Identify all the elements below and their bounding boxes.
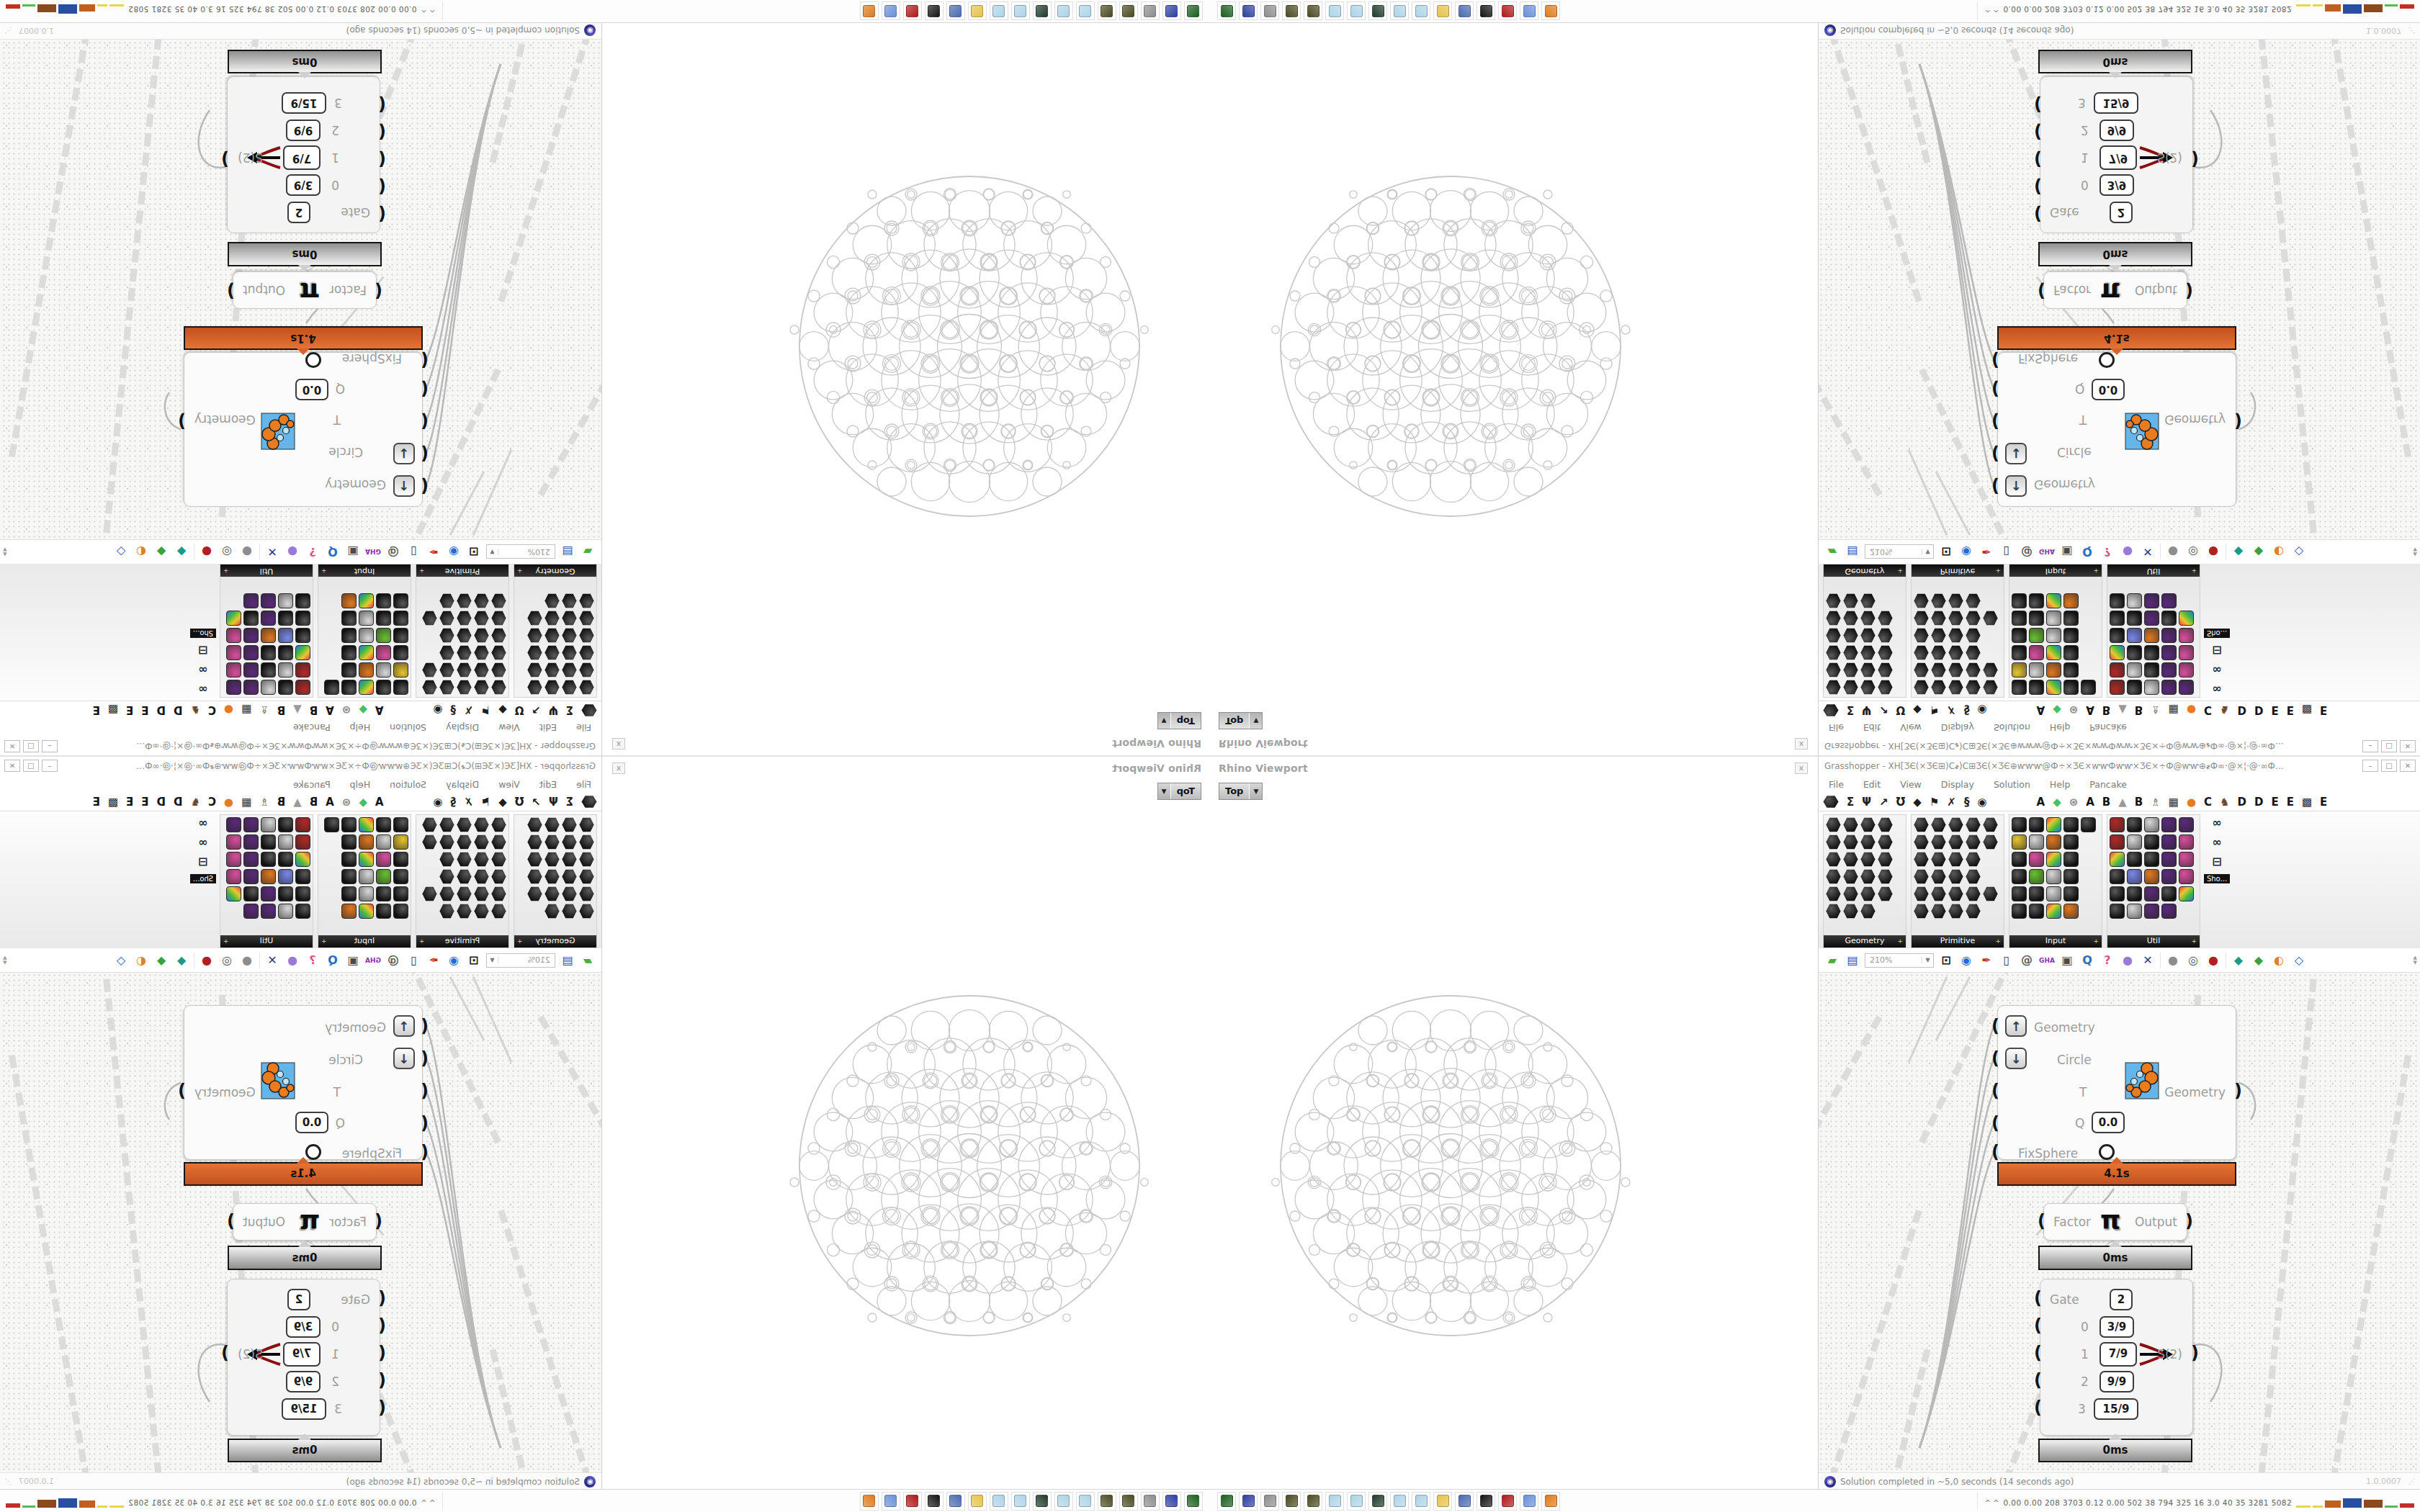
- gh-tab[interactable]: ▩: [2302, 702, 2312, 719]
- toolbar-button[interactable]: ◉: [446, 544, 462, 560]
- palette-icon[interactable]: [261, 834, 276, 850]
- palette-icon[interactable]: [243, 886, 259, 901]
- palette-icon[interactable]: [2012, 628, 2027, 643]
- palette-icon[interactable]: [295, 817, 310, 832]
- palette-icon[interactable]: [2063, 593, 2079, 608]
- palette-icon[interactable]: [2046, 869, 2061, 884]
- close-icon[interactable]: x: [1795, 738, 1808, 750]
- palette-icon[interactable]: [1966, 834, 1981, 850]
- input-port[interactable]: (: [2034, 1318, 2042, 1333]
- toolbar-button[interactable]: ◇: [113, 544, 129, 560]
- palette-icon[interactable]: [226, 852, 241, 867]
- menu-pancake[interactable]: Pancake: [293, 723, 331, 734]
- palette-icon[interactable]: [2029, 852, 2044, 867]
- palette-icon[interactable]: [544, 817, 560, 832]
- palette-icon[interactable]: [1914, 904, 1929, 919]
- taskbar-app-icon[interactable]: [1520, 2, 1538, 21]
- palette-icon[interactable]: [457, 611, 472, 626]
- palette-icon[interactable]: [341, 611, 357, 626]
- palette-icon[interactable]: [376, 904, 391, 919]
- palette-icon[interactable]: [1966, 904, 1981, 919]
- palette-icon[interactable]: [295, 852, 310, 867]
- gh-tab[interactable]: D: [2237, 793, 2246, 811]
- palette-group-label[interactable]: Util+: [2107, 564, 2200, 577]
- gh-tab[interactable]: C: [2204, 793, 2212, 811]
- gh-tab[interactable]: ✗: [1947, 702, 1956, 719]
- output-port[interactable]: ): [2234, 1084, 2242, 1098]
- node-circlepack-component[interactable]: ( ( ( ( ( ) ↑ ↓ Geometry Circle T Q 0.0 …: [1997, 352, 2236, 507]
- toolbar-scroll-arrows[interactable]: ▲▼: [2414, 955, 2417, 966]
- taskbar-app-icon[interactable]: [1390, 2, 1409, 21]
- gh-tab[interactable]: E: [126, 793, 133, 811]
- gh-tab[interactable]: Σ: [1847, 702, 1854, 719]
- palette-icon[interactable]: [1948, 904, 1963, 919]
- palette-icon[interactable]: [2110, 904, 2125, 919]
- gh-tab[interactable]: ◉: [1977, 793, 1986, 811]
- palette-group-label[interactable]: Primitive+: [1912, 564, 2004, 577]
- palette-icon[interactable]: [2127, 904, 2142, 919]
- palette-icon[interactable]: [491, 869, 506, 884]
- input-port[interactable]: (: [1991, 479, 1999, 493]
- palette-icon[interactable]: [2144, 645, 2159, 660]
- palette-icon[interactable]: [2110, 628, 2125, 643]
- palette-icon[interactable]: [2179, 628, 2194, 643]
- chevron-down-icon[interactable]: ▼: [1922, 957, 1933, 963]
- toolbar-button[interactable]: Q: [325, 953, 341, 968]
- palette-icon[interactable]: [2144, 817, 2159, 832]
- output-port[interactable]: ): [221, 1346, 229, 1360]
- taskbar-app-icon[interactable]: [1455, 1492, 1474, 1511]
- palette-icon[interactable]: [422, 886, 437, 901]
- palette-icon[interactable]: [278, 662, 293, 678]
- palette-icon[interactable]: [422, 834, 437, 850]
- input-port[interactable]: (: [378, 152, 386, 166]
- toolbar-button[interactable]: ▣: [345, 544, 361, 560]
- palette-icon[interactable]: [1914, 886, 1929, 901]
- gh-tab[interactable]: E: [141, 702, 148, 719]
- palette-icon[interactable]: [359, 904, 374, 919]
- minimize-button[interactable]: –: [42, 760, 58, 772]
- menu-view[interactable]: View: [498, 779, 520, 790]
- gate-row-value[interactable]: 3/9: [286, 174, 321, 196]
- taskbar-app-icon[interactable]: [1498, 1492, 1517, 1511]
- palette-icon[interactable]: [393, 834, 408, 850]
- palette-icon[interactable]: [1826, 628, 1841, 643]
- palette-icon[interactable]: [544, 662, 560, 678]
- close-icon[interactable]: x: [612, 762, 625, 774]
- palette-icon[interactable]: [2161, 645, 2177, 660]
- palette-icon[interactable]: [544, 628, 560, 643]
- palette-icon[interactable]: [2161, 611, 2177, 626]
- chevron-down-icon[interactable]: ▼: [1249, 783, 1262, 799]
- gate-row-value-active[interactable]: 7/9: [283, 1342, 321, 1367]
- palette-icon[interactable]: [422, 611, 437, 626]
- palette-icon[interactable]: [341, 886, 357, 901]
- palette-icon[interactable]: [1914, 852, 1929, 867]
- toolbar-button[interactable]: ?: [305, 544, 321, 560]
- palette-icon[interactable]: [261, 852, 276, 867]
- close-button[interactable]: ✕: [2400, 760, 2416, 772]
- gate-row-value[interactable]: 3/9: [286, 1316, 321, 1338]
- output-port[interactable]: ): [2191, 152, 2199, 166]
- palette-icon[interactable]: [2063, 852, 2079, 867]
- minimize-button[interactable]: –: [42, 740, 58, 752]
- taskbar-app-icon[interactable]: [1098, 2, 1116, 21]
- taskbar-app-icon[interactable]: [1119, 2, 1138, 21]
- toolbar-button[interactable]: ◎: [2185, 953, 2201, 968]
- gh-tab[interactable]: ◆: [2053, 702, 2061, 719]
- input-port[interactable]: (: [1991, 1145, 1999, 1159]
- palette-icon[interactable]: [2029, 869, 2044, 884]
- palette-icon[interactable]: [2029, 645, 2044, 660]
- node-pi-component[interactable]: ( ) Factor π Output: [2043, 271, 2187, 309]
- palette-icon[interactable]: [376, 869, 391, 884]
- gh-tab[interactable]: ◉: [433, 793, 442, 811]
- toolbar-button[interactable]: ◆: [153, 953, 169, 968]
- palette-icon[interactable]: [243, 852, 259, 867]
- input-port[interactable]: (: [1991, 353, 1999, 367]
- palette-icon[interactable]: [243, 834, 259, 850]
- palette-icon[interactable]: [544, 611, 560, 626]
- gate-row-value[interactable]: 9/9: [2099, 1371, 2134, 1392]
- taskbar-app-icon[interactable]: [1455, 2, 1474, 21]
- chevron-down-icon[interactable]: ▼: [487, 957, 498, 963]
- palette-icon[interactable]: [341, 852, 357, 867]
- gh-tab[interactable]: A: [326, 793, 334, 811]
- palette-icon[interactable]: [2127, 817, 2142, 832]
- palette-icon[interactable]: [393, 904, 408, 919]
- palette-icon[interactable]: [1878, 645, 1893, 660]
- gh-tab[interactable]: ♗: [2151, 793, 2160, 811]
- palette-icon[interactable]: [393, 869, 408, 884]
- taskbar-app-icon[interactable]: [1347, 2, 1366, 21]
- zoom-level-combo[interactable]: 210%▼: [1865, 545, 1934, 559]
- taskbar-app-icon[interactable]: [1184, 2, 1203, 21]
- input-port[interactable]: (: [421, 1019, 429, 1033]
- palette-icon[interactable]: [579, 645, 594, 660]
- palette-icon[interactable]: [1860, 628, 1875, 643]
- palette-icon[interactable]: [2110, 593, 2125, 608]
- palette-icon[interactable]: [1860, 611, 1875, 626]
- input-port[interactable]: (: [1991, 1084, 1999, 1098]
- gate-row-value-active[interactable]: 7/9: [283, 145, 321, 170]
- palette-icon[interactable]: [1878, 680, 1893, 695]
- palette-icon[interactable]: [1843, 852, 1858, 867]
- taskbar-app-icon[interactable]: [1141, 1492, 1160, 1511]
- gh-tab[interactable]: Ʊ: [1896, 702, 1906, 719]
- palette-icon[interactable]: [261, 817, 276, 832]
- palette-icon[interactable]: [261, 904, 276, 919]
- gh-tab[interactable]: ●: [2187, 793, 2196, 811]
- palette-icon[interactable]: [544, 886, 560, 901]
- palette-icon[interactable]: [544, 869, 560, 884]
- palette-icon[interactable]: [491, 852, 506, 867]
- palette-icon[interactable]: [2063, 628, 2079, 643]
- chevron-down-icon[interactable]: ▼: [487, 549, 498, 555]
- gh-tab[interactable]: ▲: [293, 702, 302, 719]
- output-port[interactable]: ): [227, 1214, 235, 1228]
- palette-icon[interactable]: [2127, 645, 2142, 660]
- palette-icon[interactable]: [1914, 628, 1929, 643]
- palette-icon[interactable]: [474, 817, 489, 832]
- palette-icon[interactable]: [376, 662, 391, 678]
- gh-tab[interactable]: D: [2254, 702, 2263, 719]
- input-port[interactable]: (: [421, 1051, 429, 1066]
- gh-tab[interactable]: ▦: [241, 702, 251, 719]
- gh-tab[interactable]: ◉: [1977, 702, 1986, 719]
- palette-icon[interactable]: [359, 834, 374, 850]
- palette-icon[interactable]: [359, 645, 374, 660]
- toolbar-button[interactable]: ✒: [1978, 544, 1994, 560]
- palette-icon[interactable]: [2144, 904, 2159, 919]
- palette-icon[interactable]: [439, 852, 454, 867]
- input-port[interactable]: (: [421, 479, 429, 493]
- palette-icon[interactable]: [1843, 662, 1858, 678]
- palette-icon[interactable]: [562, 611, 577, 626]
- input-port[interactable]: (: [2038, 1214, 2045, 1228]
- toolbar-button[interactable]: ◐: [133, 544, 149, 560]
- palette-icon[interactable]: [457, 628, 472, 643]
- taskbar-app-icon[interactable]: [882, 2, 900, 21]
- palette-icon[interactable]: [562, 680, 577, 695]
- resize-grip[interactable]: ⋰: [2408, 1477, 2416, 1485]
- gh-tab[interactable]: ◆: [1913, 793, 1922, 811]
- palette-icon[interactable]: [2046, 886, 2061, 901]
- input-port[interactable]: (: [1991, 1019, 1999, 1033]
- menu-pancake[interactable]: Pancake: [2089, 723, 2127, 734]
- gate-row-value[interactable]: 3/9: [2099, 1316, 2134, 1338]
- palette-icon[interactable]: [359, 852, 374, 867]
- palette-icon[interactable]: [226, 817, 241, 832]
- menu-edit[interactable]: Edit: [539, 723, 557, 734]
- taskbar-app-icon[interactable]: [1260, 2, 1279, 21]
- input-port[interactable]: (: [2034, 1400, 2042, 1415]
- palette-icon[interactable]: [1878, 886, 1893, 901]
- tray-expand-icon[interactable]: ^ ^: [421, 1500, 435, 1511]
- palette-icon[interactable]: [474, 886, 489, 901]
- palette-group-label[interactable]: Primitive+: [416, 564, 508, 577]
- menu-solution[interactable]: Solution: [1994, 723, 2030, 734]
- palette-icon[interactable]: [376, 852, 391, 867]
- taskbar-app-icon[interactable]: [968, 1492, 987, 1511]
- output-port[interactable]: ): [221, 152, 229, 166]
- palette-icon[interactable]: [1914, 593, 1929, 608]
- gh-tab[interactable]: ♗: [259, 702, 269, 719]
- menu-display[interactable]: Display: [446, 723, 479, 734]
- toolbar-button[interactable]: GHA: [365, 544, 381, 560]
- palette-icon[interactable]: [474, 645, 489, 660]
- palette-icon[interactable]: [2012, 852, 2027, 867]
- palette-icon[interactable]: [579, 662, 594, 678]
- input-port[interactable]: (: [378, 179, 386, 194]
- palette-icon[interactable]: [2110, 869, 2125, 884]
- palette-icon[interactable]: [295, 628, 310, 643]
- palette-icon[interactable]: [2081, 817, 2096, 832]
- gh-tab[interactable]: D: [157, 702, 166, 719]
- toolbar-button[interactable]: ●: [2205, 544, 2221, 560]
- close-button[interactable]: ✕: [4, 740, 20, 752]
- palette-icon[interactable]: [261, 611, 276, 626]
- toolbar-button[interactable]: ✕: [264, 953, 280, 968]
- palette-icon[interactable]: [2127, 886, 2142, 901]
- palette-icon[interactable]: [278, 869, 293, 884]
- palette-icon[interactable]: [1843, 886, 1858, 901]
- palette-icon[interactable]: [2144, 680, 2159, 695]
- gh-tab[interactable]: Ψ: [1862, 793, 1871, 811]
- palette-icon[interactable]: [1931, 611, 1946, 626]
- palette-icon[interactable]: [2012, 869, 2027, 884]
- palette-icon[interactable]: [1983, 662, 1998, 678]
- palette-icon[interactable]: [2144, 852, 2159, 867]
- palette-icon[interactable]: [527, 611, 542, 626]
- palette-icon[interactable]: [2046, 852, 2061, 867]
- node-circlepack-component[interactable]: ( ( ( ( ( ) ↑ ↓ Geometry Circle T Q 0.0 …: [184, 352, 423, 507]
- palette-icon[interactable]: [2144, 628, 2159, 643]
- input-port[interactable]: (: [2034, 207, 2042, 221]
- palette-icon[interactable]: [2110, 680, 2125, 695]
- palette-icon[interactable]: [261, 680, 276, 695]
- palette-icon[interactable]: [2127, 834, 2142, 850]
- palette-icon[interactable]: [562, 886, 577, 901]
- taskbar-app-icon[interactable]: [1033, 1492, 1052, 1511]
- palette-icon[interactable]: [2127, 852, 2142, 867]
- palette-icon[interactable]: [2063, 869, 2079, 884]
- gh-tab[interactable]: B: [310, 793, 318, 811]
- palette-icon[interactable]: [1914, 662, 1929, 678]
- palette-icon[interactable]: [295, 834, 310, 850]
- palette-icon[interactable]: [562, 904, 577, 919]
- gh-tab[interactable]: Ʊ: [515, 702, 524, 719]
- gh-titlebar[interactable]: Grasshopper - XH[ƷЄ(×ƷЄ⊞)C҂)C⊞ƷЄ(×ƷЄ⊕ⱳⱳⱳ…: [1819, 737, 2420, 755]
- palette-icon[interactable]: [1931, 662, 1946, 678]
- taskbar-app-icon[interactable]: [1162, 2, 1181, 21]
- palette-icon[interactable]: [278, 593, 293, 608]
- palette-icon[interactable]: [1931, 680, 1946, 695]
- palette-icon[interactable]: [2029, 817, 2044, 832]
- toolbar-button[interactable]: ◐: [2271, 953, 2287, 968]
- palette-icon[interactable]: [2127, 628, 2142, 643]
- palette-icon[interactable]: [2012, 904, 2027, 919]
- menu-help[interactable]: Help: [350, 723, 371, 734]
- menu-file[interactable]: File: [1829, 779, 1844, 790]
- palette-icon[interactable]: [1843, 645, 1858, 660]
- palette-icon[interactable]: [2161, 904, 2177, 919]
- gh-tab[interactable]: E: [2287, 793, 2294, 811]
- gh-canvas[interactable]: ( ( ( ( ( ) ↑ ↓ Geometry Circle T Q 0.0 …: [0, 40, 601, 539]
- palette-icon[interactable]: [1860, 817, 1875, 832]
- gh-tab[interactable]: ◆: [2053, 793, 2061, 811]
- taskbar-app-icon[interactable]: [1260, 1492, 1279, 1511]
- chevron-down-icon[interactable]: ▼: [1249, 713, 1262, 729]
- gh-tab[interactable]: B: [2135, 702, 2143, 719]
- toolbar-button[interactable]: ▤: [1845, 544, 1860, 560]
- gh-tab[interactable]: ▩: [108, 702, 118, 719]
- gh-tab[interactable]: Ʊ: [1896, 793, 1906, 811]
- palette-icon[interactable]: [2127, 593, 2142, 608]
- palette-icon[interactable]: [1826, 662, 1841, 678]
- toolbar-button[interactable]: ●: [199, 544, 215, 560]
- node-stream-gate[interactable]: ( ( ( ( ( ) Gate 2 0 3/9 1 7/9 2 9/9 3 1…: [227, 1279, 380, 1436]
- toolbar-button[interactable]: Q: [325, 544, 341, 560]
- input-port[interactable]: (: [1991, 1051, 1999, 1066]
- palette-icon[interactable]: [2179, 611, 2194, 626]
- palette-icon[interactable]: [1826, 611, 1841, 626]
- taskbar-app-icon[interactable]: [1282, 1492, 1301, 1511]
- palette-icon[interactable]: [2029, 904, 2044, 919]
- gh-tab[interactable]: ⚑: [1930, 702, 1939, 719]
- gh-tab[interactable]: C: [2204, 702, 2212, 719]
- palette-icon[interactable]: [359, 662, 374, 678]
- toolbar-button[interactable]: ◉: [1958, 544, 1974, 560]
- input-port[interactable]: (: [1991, 1116, 1999, 1130]
- palette-icon[interactable]: [243, 611, 259, 626]
- gh-tab[interactable]: ♗: [259, 793, 269, 811]
- toolbar-button[interactable]: @: [385, 953, 401, 968]
- palette-icon[interactable]: [359, 886, 374, 901]
- menu-solution[interactable]: Solution: [390, 723, 426, 734]
- gh-titlebar[interactable]: Grasshopper - XH[ƷЄ(×ƷЄ⊞)C҂)C⊞ƷЄ(×ƷЄ⊕ⱳⱳⱳ…: [0, 757, 601, 775]
- toolbar-scroll-arrows[interactable]: ▲▼: [3, 955, 6, 966]
- close-button[interactable]: ✕: [2400, 740, 2416, 752]
- palette-group-label[interactable]: Input+: [318, 935, 411, 948]
- palette-icon[interactable]: [562, 645, 577, 660]
- input-port[interactable]: (: [2034, 179, 2042, 194]
- palette-icon[interactable]: [2127, 869, 2142, 884]
- input-port[interactable]: (: [378, 1400, 386, 1415]
- toolbar-button[interactable]: ◆: [174, 544, 189, 560]
- gh-tab[interactable]: ⊛: [342, 793, 351, 811]
- input-port[interactable]: (: [421, 353, 429, 367]
- input-port[interactable]: (: [378, 125, 386, 139]
- palette-icon[interactable]: [295, 611, 310, 626]
- input-port[interactable]: (: [2034, 1291, 2042, 1305]
- palette-icon[interactable]: [243, 904, 259, 919]
- palette-icon[interactable]: [393, 662, 408, 678]
- palette-icon[interactable]: [2012, 886, 2027, 901]
- gh-tab[interactable]: E: [2320, 702, 2327, 719]
- taskbar-app-icon[interactable]: [990, 2, 1008, 21]
- input-port[interactable]: (: [2038, 284, 2045, 298]
- gh-tab[interactable]: ♗: [2151, 702, 2160, 719]
- toolbar-button[interactable]: @: [2019, 544, 2035, 560]
- gh-tab[interactable]: ↗: [532, 793, 541, 811]
- gh-tab[interactable]: ⊛: [342, 702, 351, 719]
- toolbar-button[interactable]: ✕: [2140, 544, 2156, 560]
- taskbar-app-icon[interactable]: [1304, 2, 1322, 21]
- maximize-button[interactable]: □: [2381, 760, 2397, 772]
- palette-icon[interactable]: [474, 662, 489, 678]
- palette-icon[interactable]: [1948, 680, 1963, 695]
- q-value-box[interactable]: 0.0: [2092, 1112, 2125, 1133]
- palette-icon[interactable]: [359, 593, 374, 608]
- gh-tab[interactable]: A: [375, 793, 384, 811]
- palette-icon[interactable]: [1860, 904, 1875, 919]
- gh-tab[interactable]: ⚑: [481, 702, 490, 719]
- input-port[interactable]: (: [2034, 1373, 2042, 1387]
- toolbar-button[interactable]: ◎: [219, 544, 235, 560]
- gh-tab[interactable]: §: [451, 702, 457, 719]
- input-port[interactable]: (: [1991, 446, 1999, 461]
- palette-icon[interactable]: [2046, 834, 2061, 850]
- palette-icon[interactable]: [1843, 611, 1858, 626]
- palette-group-label[interactable]: Geometry+: [1824, 935, 1906, 948]
- gh-tab[interactable]: D: [2254, 793, 2263, 811]
- node-pi-component[interactable]: ( ) Factor π Output: [233, 1203, 377, 1241]
- palette-extra-icon[interactable]: ∞: [198, 816, 207, 829]
- palette-icon[interactable]: [579, 817, 594, 832]
- palette-icon[interactable]: [243, 593, 259, 608]
- taskbar-app-icon[interactable]: [1541, 1492, 1560, 1511]
